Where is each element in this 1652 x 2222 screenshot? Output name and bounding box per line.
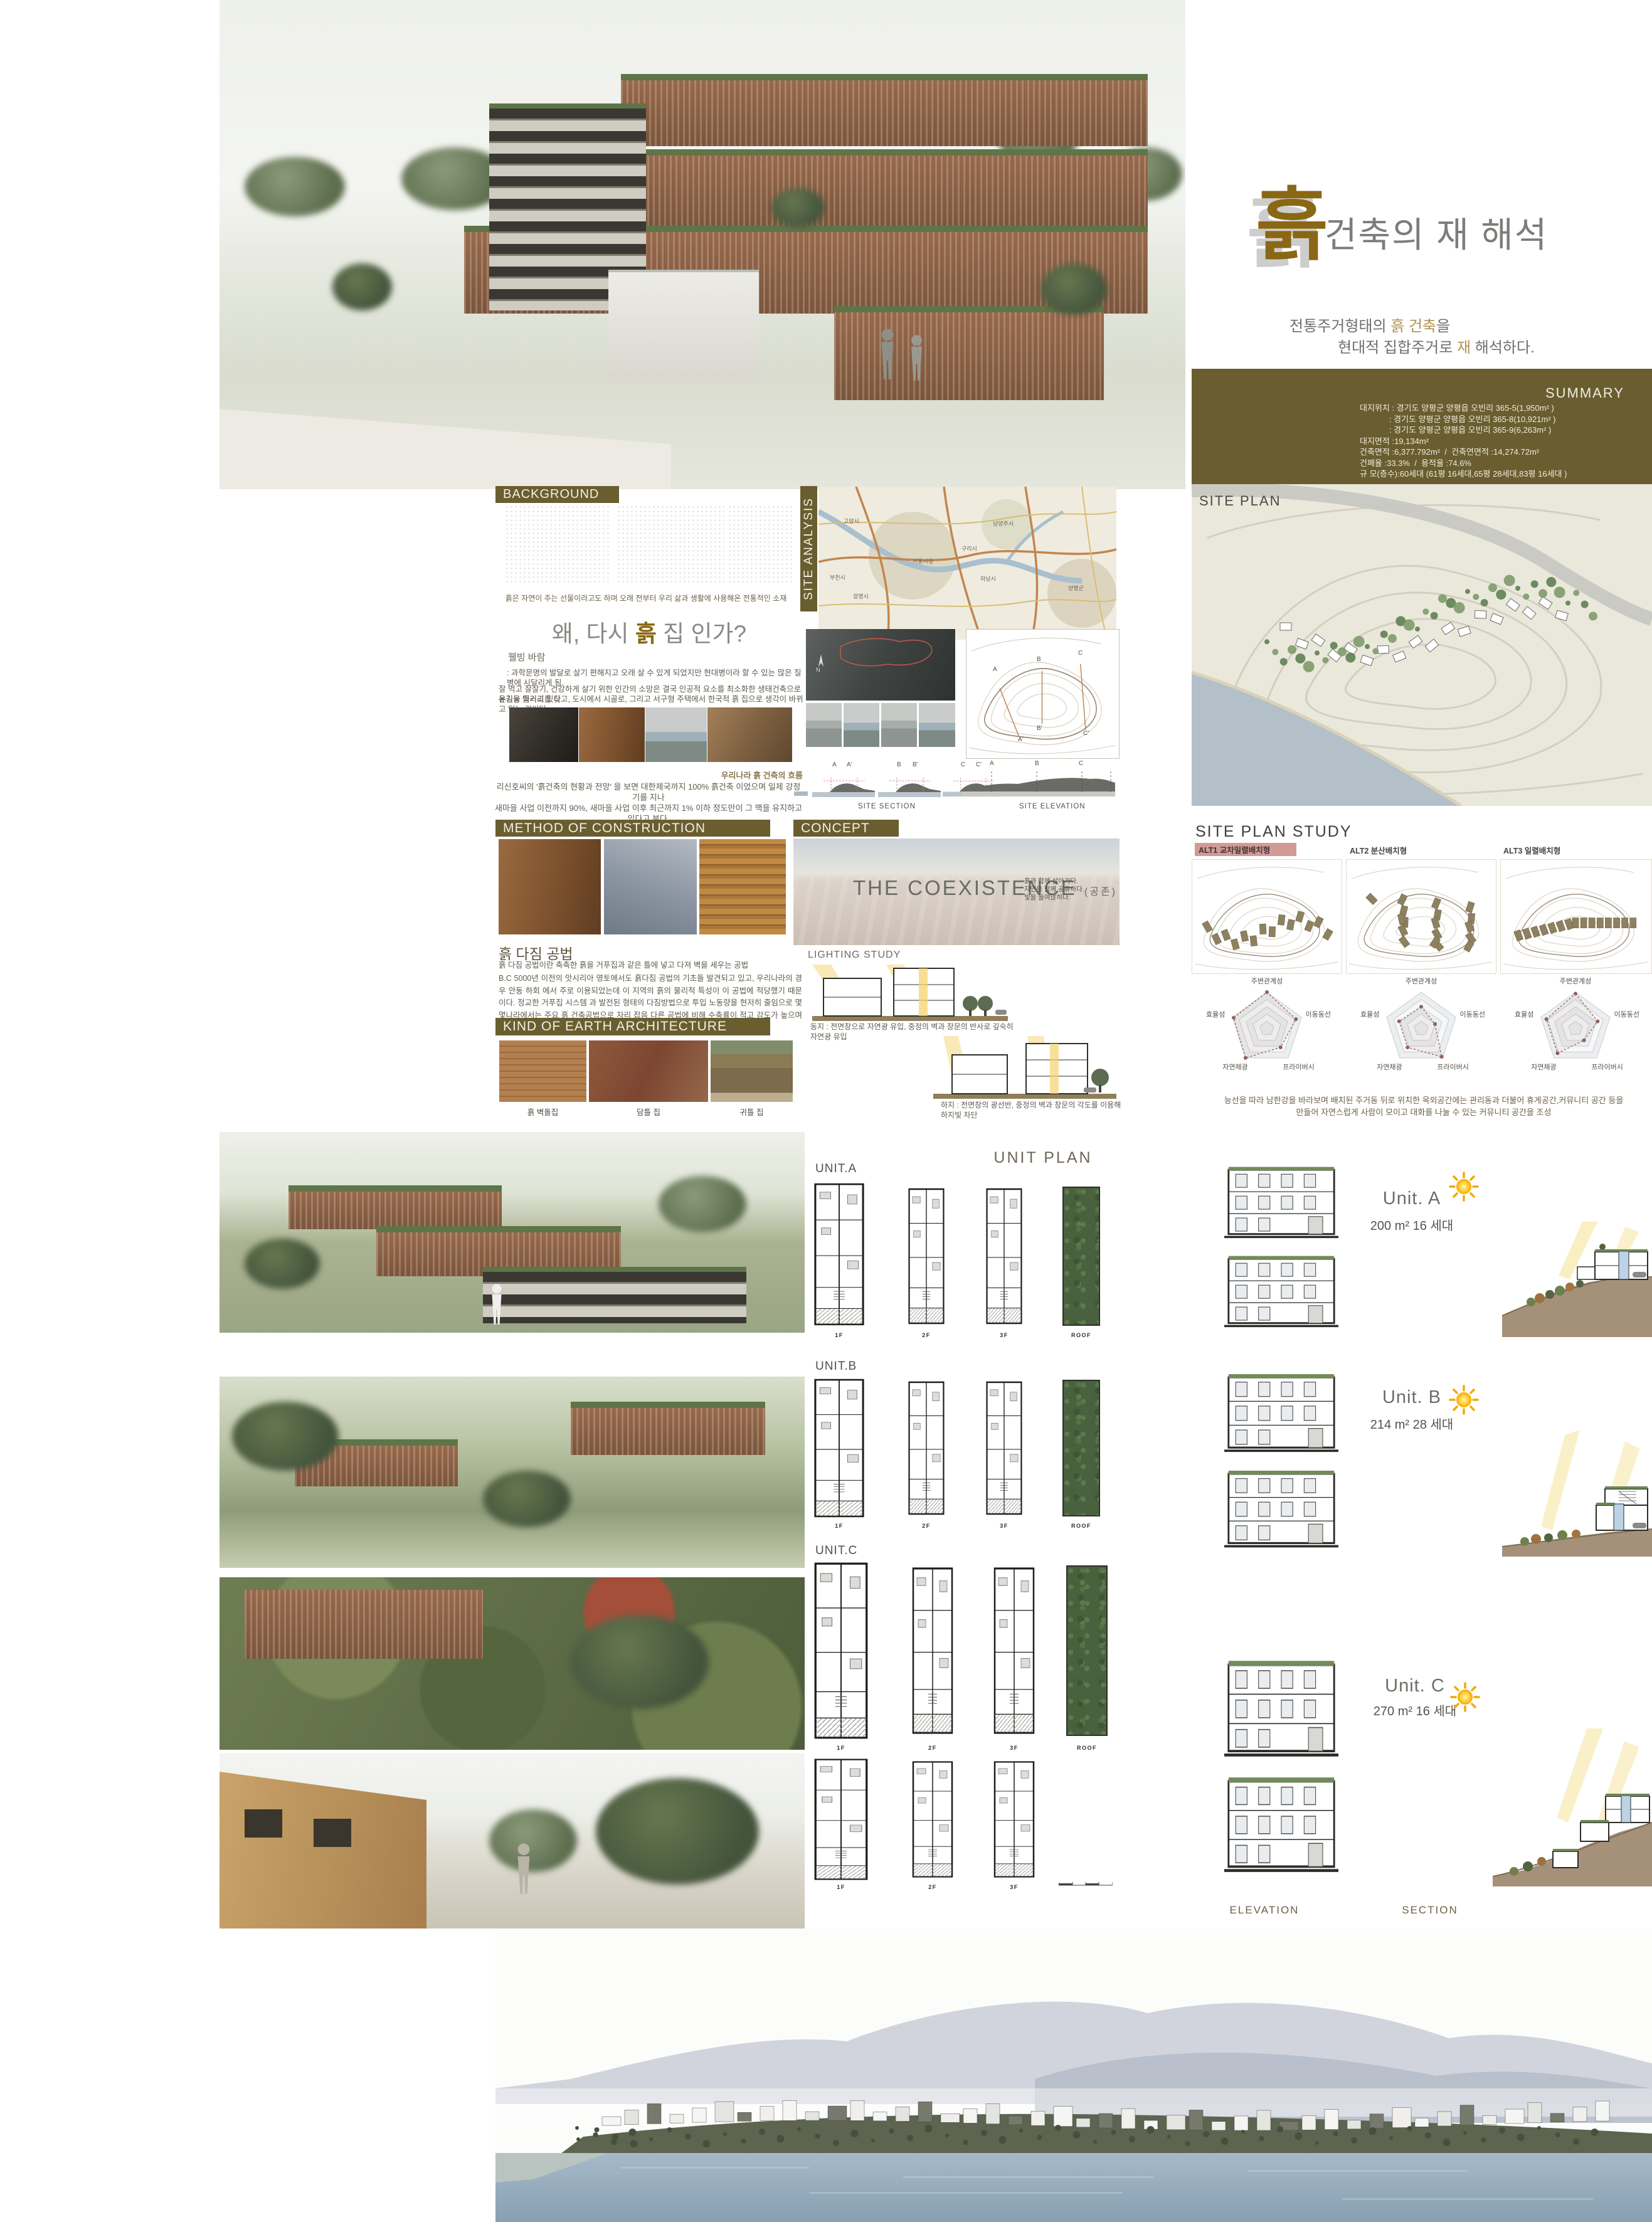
floor-plan <box>985 1187 1024 1326</box>
lighting-summer-caption: 하지 : 전면창의 광선반, 중정의 벽과 창문의 각도를 이용해 하지빛 차단 <box>941 1101 1123 1120</box>
contour-diagram: A A' B B' C C' <box>966 629 1120 759</box>
soil-photo-3 <box>728 505 792 585</box>
radar-axis-label: 주변관계성 <box>1560 976 1592 986</box>
background-header-bar: BACKGROUND <box>495 486 619 503</box>
summary-heading: SUMMARY <box>1545 385 1624 401</box>
site-plan-panel: SITE PLAN <box>1192 484 1652 806</box>
method-title: 흙 다짐 공법 <box>499 942 573 963</box>
roof-plan-green <box>1062 1380 1100 1516</box>
radar-axis-label: 자연채광 <box>1222 1062 1247 1072</box>
floor-label: ROOF <box>1068 1745 1106 1751</box>
floor-label: 2F <box>914 1884 951 1890</box>
logo-soil-character: 흙 <box>1256 162 1328 276</box>
alt1-map <box>1192 859 1342 974</box>
unit-b-section <box>1502 1424 1652 1557</box>
elevation-drawing <box>1224 1657 1338 1765</box>
floor-plan <box>812 1377 866 1519</box>
render-hillside-view <box>220 1377 805 1568</box>
aerial-photo: N <box>806 629 955 701</box>
person-silhouette <box>908 332 925 386</box>
radar-axis-label: 프라이버시 <box>1283 1062 1315 1072</box>
elevation-drawing <box>1224 1468 1338 1554</box>
floor-label: 2F <box>914 1745 951 1751</box>
unit-b-area: 214 m² 28 세대 <box>1339 1414 1485 1432</box>
sun-icon <box>1449 1172 1479 1202</box>
summary-panel: SUMMARY 대지위치 : 경기도 양평군 양평읍 오빈리 365-5(1,9… <box>1192 369 1652 484</box>
kind-caption-3: 귀틀 집 <box>711 1106 793 1118</box>
method-photo-3 <box>699 839 786 934</box>
floor-label: 1F <box>822 1884 860 1890</box>
contour-diagram-drawing <box>966 630 1119 758</box>
site-section-profile-a <box>812 770 875 798</box>
tree-blob <box>659 1176 746 1232</box>
render-street-view <box>220 1753 805 1928</box>
site-elevation-profile <box>961 769 1115 798</box>
site-section-profile-b <box>878 770 941 798</box>
map-label: 고양시 <box>844 517 859 525</box>
unit-c-section <box>1493 1728 1652 1886</box>
profile-letter: C <box>961 761 965 768</box>
subtitle-accent: 재 <box>1457 339 1471 356</box>
method-photo-2 <box>604 839 697 934</box>
concept-paren: (공존) <box>1084 887 1117 897</box>
region-map: 고양시 서울시청 구리시 남양주시 하남시 부천시 광명시 양평군 <box>818 487 1116 640</box>
unit-b-label: UNIT.B <box>815 1360 857 1373</box>
why-heading-accent: 흙 <box>635 621 657 647</box>
subtitle-line-2: 현대적 집합주거로 재 해석하다. <box>1338 335 1535 357</box>
lighting-study-label: LIGHTING STUDY <box>808 950 901 961</box>
alt3-label: ALT3 일렬배치형 <box>1503 844 1560 856</box>
subtitle-accent: 흙 건축 <box>1390 318 1436 335</box>
radar-chart-alt1: 주변관계성이동동선프라이버시자연채광효율성 <box>1190 969 1343 1088</box>
map-label: 부천시 <box>830 573 845 581</box>
profile-letter: A <box>832 761 837 768</box>
tree-blob <box>245 157 345 216</box>
tree-blob <box>571 1615 709 1709</box>
floor-label: ROOF <box>1062 1332 1100 1338</box>
map-label: 양평군 <box>1068 584 1084 592</box>
elevation-drawing <box>1224 1253 1338 1333</box>
floor-label: 3F <box>985 1332 1023 1338</box>
radar-chart-alt3: 주변관계성이동동선프라이버시자연채광효율성 <box>1499 969 1652 1088</box>
profile-letter: C' <box>976 761 982 768</box>
unit-c-label: UNIT.C <box>815 1544 857 1558</box>
section-label: SECTION <box>1380 1904 1480 1917</box>
sun-icon <box>1450 1682 1480 1712</box>
earth-house-photo-3 <box>645 707 707 762</box>
alt-map-svg <box>1192 860 1342 973</box>
floor-plan <box>907 1187 946 1326</box>
section-letter: A' <box>1018 736 1024 743</box>
radar-axis-label: 자연채광 <box>1531 1062 1556 1072</box>
floor-plan <box>985 1380 1024 1516</box>
map-label: 광명시 <box>853 592 869 600</box>
elevation-drawing <box>1224 1164 1338 1244</box>
site-photo-3 <box>881 703 917 747</box>
floor-plan <box>911 1760 955 1879</box>
floor-label: 2F <box>908 1332 945 1338</box>
foreground-deck <box>220 389 671 489</box>
person-silhouette <box>489 1283 504 1329</box>
kind-photo-log <box>711 1040 793 1102</box>
floor-label: 1F <box>820 1332 858 1338</box>
site-elevation-label: SITE ELEVATION <box>1019 803 1086 810</box>
radar-axis-label: 주변관계성 <box>1251 976 1283 986</box>
building-block <box>289 1185 502 1229</box>
method-header-bar: METHOD OF CONSTRUCTION <box>495 820 770 837</box>
kind-caption-2: 담틀 집 <box>589 1106 708 1118</box>
building-block <box>834 306 1104 400</box>
map-label: 하남시 <box>980 574 996 583</box>
tree-blob <box>489 1809 577 1872</box>
why-heading: 왜, 다시 흙 집 인가? <box>495 615 803 648</box>
kind-photo-brick <box>499 1040 586 1102</box>
map-label: 구리시 <box>961 544 977 553</box>
floor-plan <box>812 1757 870 1881</box>
concept-image: THE COEXISTENCE (공존) 흙과 함께 살아가다. 자연을 함께 … <box>793 839 1120 945</box>
alt-map-svg <box>1347 860 1496 973</box>
floor-plan <box>911 1565 955 1736</box>
building-facade <box>220 1772 426 1928</box>
floor-plan <box>992 1565 1036 1736</box>
region-map-drawing <box>818 487 1116 640</box>
radar-axis-label: 프라이버시 <box>1591 1062 1623 1072</box>
earth-house-photo-2 <box>579 707 645 762</box>
site-plan-drawing <box>1192 484 1652 806</box>
tree-blob <box>771 188 825 227</box>
building-block <box>621 74 1148 146</box>
profile-letter: A' <box>847 761 852 768</box>
unit-plan-header: UNIT PLAN <box>974 1149 1112 1167</box>
unit-a-area: 200 m² 16 세대 <box>1339 1215 1485 1234</box>
floor-plan <box>812 1182 866 1327</box>
lighting-diagram-winter <box>812 965 1008 1022</box>
elevation-letter: C <box>1079 760 1083 767</box>
profile-letter: B <box>897 761 901 768</box>
concept-lines: 흙과 함께 살아가다. 자연을 함께 공유하다. 빛을 들여앉히다. <box>1024 877 1084 902</box>
floor-label: ROOF <box>1062 1523 1100 1529</box>
radar-svg <box>1190 969 1343 1088</box>
radar-axis-label: 이동동선 <box>1306 1009 1331 1019</box>
alt-map-svg <box>1501 860 1651 973</box>
alt2-map <box>1346 859 1496 974</box>
radar-svg <box>1345 969 1498 1088</box>
person-silhouette <box>878 326 897 386</box>
tree-blob <box>483 1471 571 1527</box>
background-caption: 흙은 자연이 주는 선물이라고도 하며 오래 전부터 우리 삶과 생활에 사용해… <box>499 593 793 603</box>
section-letter: B <box>1037 656 1041 663</box>
alt2-label: ALT2 분산배치형 <box>1350 844 1407 856</box>
earth-house-photo-4 <box>707 707 792 762</box>
site-section-label: SITE SECTION <box>858 803 916 810</box>
section-letter: C' <box>1083 730 1089 737</box>
render-aerial-view <box>220 1132 805 1333</box>
poster: 흙 건축의 재 해석 전통주거형태의 흙 건축을 현대적 집합주거로 재 해석하… <box>0 0 1652 2222</box>
site-plan-label: SITE PLAN <box>1199 493 1281 509</box>
window <box>314 1819 351 1847</box>
wellbeing-title: 웰빙 바람 <box>508 650 545 664</box>
concept-header-bar: CONCEPT <box>793 820 899 837</box>
tree-blob <box>245 1239 320 1289</box>
tree-blob <box>332 263 392 310</box>
lighting-diagram-summer <box>933 1036 1116 1100</box>
radar-axis-label: 자연채광 <box>1377 1062 1402 1072</box>
sun-icon <box>1449 1385 1479 1415</box>
building-block <box>245 1590 483 1659</box>
floor-label: 3F <box>995 1745 1033 1751</box>
tree-blob <box>232 1402 339 1471</box>
radar-chart-alt2: 주변관계성이동동선프라이버시자연채광효율성 <box>1345 969 1498 1088</box>
site-boundary-overlay <box>806 629 955 701</box>
roof-plan-green <box>1062 1187 1100 1326</box>
floor-label: 1F <box>820 1523 858 1529</box>
flow-text: 리신호씨의 '흙건축의 현황과 전망' 을 보면 대한제국까지 100% 흙건축… <box>494 781 803 824</box>
radar-axis-label: 이동동선 <box>1614 1009 1639 1019</box>
floor-label: 1F <box>822 1745 860 1751</box>
kind-caption-1: 흙 벽돌집 <box>499 1106 586 1118</box>
summary-lines: 대지위치 : 경기도 양평군 양평읍 오빈리 365-5(1,950m² ) :… <box>1360 403 1567 480</box>
elevation-drawing <box>1224 1371 1338 1459</box>
building-block <box>608 270 759 383</box>
unit-a-label: UNIT.A <box>815 1162 857 1176</box>
elevation-letter: A <box>990 760 994 767</box>
scale-bar <box>1059 1880 1113 1886</box>
section-letter: B' <box>1037 725 1042 732</box>
radar-axis-label: 이동동선 <box>1460 1009 1485 1019</box>
kind-photo-forms <box>589 1040 708 1102</box>
floor-plan <box>812 1560 870 1741</box>
method-photo-1 <box>499 839 601 934</box>
radar-axis-label: 주변관계성 <box>1406 976 1438 986</box>
alt3-map <box>1500 859 1652 974</box>
section-letter: A <box>993 666 997 673</box>
site-plan-study-header: SITE PLAN STUDY <box>1195 823 1352 841</box>
floor-plan <box>907 1380 946 1516</box>
site-photo-4 <box>919 703 955 747</box>
soil-photo-2 <box>617 505 724 585</box>
flow-title: 우리나라 흙 건축의 흐름 <box>665 769 803 781</box>
building-block <box>571 1402 765 1455</box>
map-label: 남양주시 <box>993 519 1014 527</box>
radar-axis-label: 효율성 <box>1206 1009 1225 1019</box>
person-silhouette <box>514 1841 533 1900</box>
method-paragraph-1: 흙 다짐 공법이란 축축한 흙을 거푸집과 같은 틀에 넣고 다져 벽을 세우는… <box>499 961 802 971</box>
render-vegetation-closeup <box>220 1577 805 1750</box>
tree-blob <box>596 1778 759 1885</box>
floor-label: 3F <box>985 1523 1023 1529</box>
site-photo-2 <box>844 703 879 747</box>
hero-render-image <box>220 0 1185 489</box>
site-photo-1 <box>806 703 842 747</box>
soil-photo-1 <box>505 505 612 585</box>
building-block <box>483 1267 746 1323</box>
radar-axis-label: 효율성 <box>1360 1009 1379 1019</box>
map-label: 서울시청 <box>913 557 933 565</box>
page-title: 건축의 재 해석 <box>1325 207 1548 258</box>
section-letter: C <box>1078 650 1083 657</box>
floor-label: 2F <box>908 1523 945 1529</box>
decorative-tick <box>794 791 808 796</box>
subtitle-line-1: 전통주거형태의 흙 건축을 <box>1289 314 1450 336</box>
panorama-render <box>495 1928 1652 2222</box>
alt1-chip: ALT1 교차일렬배치형 <box>1195 843 1296 856</box>
site-analysis-vertical-label: SITE ANALYSIS <box>800 486 817 611</box>
floor-plan <box>992 1760 1036 1879</box>
window <box>245 1809 282 1838</box>
elevation-label: ELEVATION <box>1214 1904 1315 1917</box>
roof-plan-green <box>1066 1565 1108 1736</box>
study-note: 능선을 따라 남한강을 바라보며 배치된 주거동 뒤로 위치한 옥외공간에는 관… <box>1210 1094 1637 1118</box>
radar-axis-label: 효율성 <box>1515 1009 1533 1019</box>
earth-house-photo-1 <box>509 707 578 762</box>
compass-n: N <box>816 667 820 673</box>
unit-a-section <box>1502 1222 1652 1337</box>
radar-svg <box>1499 969 1652 1088</box>
elevation-drawing <box>1224 1774 1338 1880</box>
radar-axis-label: 프라이버시 <box>1437 1062 1469 1072</box>
kinds-header-bar: KIND OF EARTH ARCHITECTURE <box>495 1018 770 1035</box>
floor-label: 3F <box>995 1884 1033 1890</box>
tree-blob <box>1041 263 1107 315</box>
elevation-letter: B <box>1035 760 1039 767</box>
profile-letter: B' <box>913 761 918 768</box>
